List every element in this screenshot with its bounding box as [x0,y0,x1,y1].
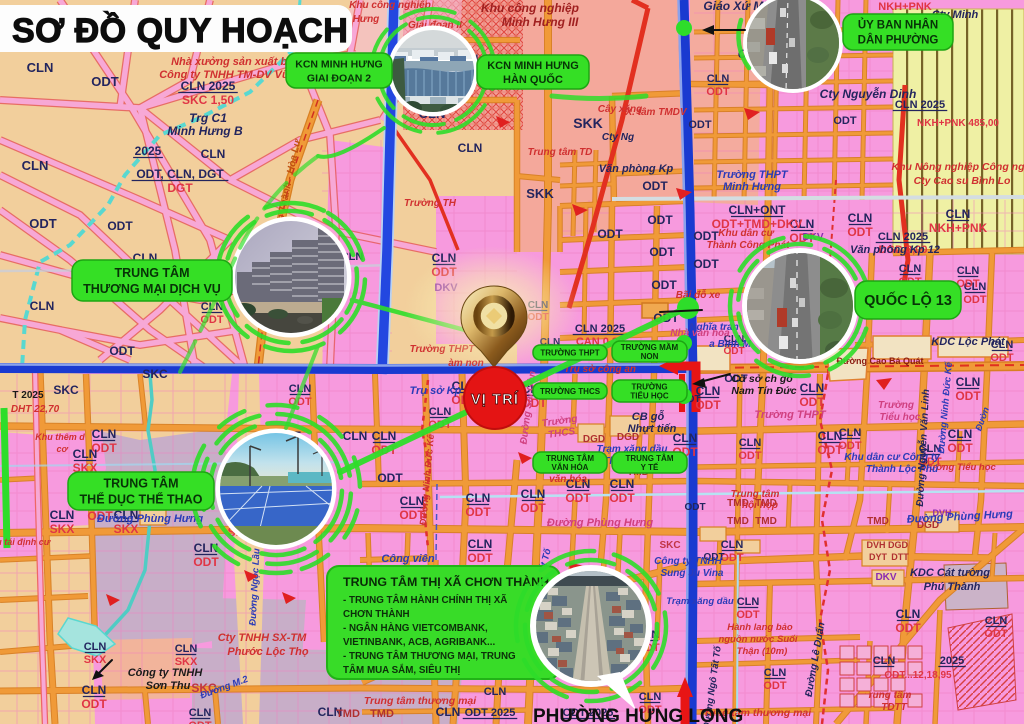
svg-text:hội họp: hội họp [742,500,778,511]
svg-text:ODT: ODT [799,395,825,409]
svg-text:Hành lang bảo: Hành lang bảo [727,622,793,633]
svg-text:Tiểu học: Tiểu học [880,411,921,423]
svg-text:CHƠN THÀNH: CHƠN THÀNH [343,608,410,620]
svg-text:Minh Hưng III: Minh Hưng III [502,15,579,29]
svg-text:CLN: CLN [22,158,49,173]
svg-text:CLN: CLN [848,211,873,225]
svg-text:THỂ DỤC THỂ THAO: THỂ DỤC THỂ THAO [80,492,203,507]
svg-text:ODT: ODT [609,491,635,505]
svg-text:CLN: CLN [764,667,787,679]
svg-text:TRƯỜNG THCS: TRƯỜNG THCS [540,387,601,396]
svg-text:CLN: CLN [82,683,107,697]
svg-text:ODT: ODT [738,450,762,462]
svg-text:Minh Hưng B: Minh Hưng B [167,124,243,138]
svg-text:CLN: CLN [201,147,226,161]
svg-text:TRUNG TÂM: TRUNG TÂM [546,454,594,463]
svg-text:CLN: CLN [468,537,493,551]
svg-text:ODT: ODT [706,86,730,98]
svg-text:CLN: CLN [800,381,825,395]
svg-text:CLN: CLN [73,447,98,461]
svg-text:KCN MINH HƯNG: KCN MINH HƯNG [295,58,382,70]
svg-text:Đường Phùng Hưng: Đường Phùng Hưng [97,513,203,525]
svg-text:CLN: CLN [948,427,973,441]
svg-text:TDTT: TDTT [881,702,907,713]
svg-text:CLN: CLN [84,641,107,653]
svg-text:ODT: ODT [688,119,712,131]
svg-text:KDC Lộc Phát: KDC Lộc Phát [931,336,1006,348]
svg-text:CLN: CLN [610,477,635,491]
svg-text:Khu thêm d: Khu thêm d [35,432,85,442]
svg-text:Sung Ju Vina: Sung Ju Vina [661,568,724,579]
svg-text:CLN 2025: CLN 2025 [878,231,928,243]
svg-text:ODT 2025: ODT 2025 [465,707,516,719]
svg-text:T 2025: T 2025 [12,390,44,401]
svg-text:CLN: CLN [484,686,507,698]
svg-text:cơ: cơ [56,444,68,454]
svg-text:ODT: ODT [847,225,873,239]
svg-text:TRUNG TÂM: TRUNG TÂM [104,476,179,491]
svg-text:ODT: ODT [649,245,675,259]
svg-text:CLN: CLN [343,429,368,443]
svg-text:TRUNG TÂM: TRUNG TÂM [115,265,190,280]
svg-text:ODT: ODT [91,74,119,89]
svg-text:TRUNG TÂM: TRUNG TÂM [626,454,674,463]
svg-text:khu tái định cư: khu tái định cư [0,537,52,547]
svg-text:SKK: SKK [573,115,603,131]
svg-text:CLN 2025: CLN 2025 [181,79,236,93]
svg-text:Trụ sở Kp 7: Trụ sở Kp 7 [410,385,472,397]
svg-text:nguồn nước Suối: nguồn nước Suối [718,634,797,645]
svg-text:DYT: DYT [869,552,888,562]
svg-text:VỊ TRÍ: VỊ TRÍ [471,391,519,408]
svg-text:ODT: ODT [955,389,981,403]
svg-text:CLN: CLN [737,596,760,608]
svg-text:Trường TH: Trường TH [404,198,457,209]
svg-text:THƯƠNG MẠI DỊCH VỤ: THƯƠNG MẠI DỊCH VỤ [83,282,221,296]
svg-text:ODT: ODT [188,720,212,724]
svg-text:Khu dân cư: Khu dân cư [718,228,774,239]
svg-text:CLN: CLN [896,607,921,621]
svg-text:CLN: CLN [521,487,546,501]
svg-text:GIAI ĐOẠN 2: GIAI ĐOẠN 2 [307,72,371,84]
svg-text:TRƯỜNG THPT: TRƯỜNG THPT [540,348,599,357]
svg-text:Y TẾ: Y TẾ [641,462,659,472]
svg-text:CLN: CLN [707,73,730,85]
svg-text:TRƯỜNG: TRƯỜNG [631,382,667,391]
svg-text:văn hóa: văn hóa [549,474,587,485]
svg-text:CLN: CLN [429,406,452,418]
svg-text:CLN: CLN [739,437,762,449]
svg-text:CB gỗ: CB gỗ [632,410,665,423]
svg-text:CLN: CLN [946,207,971,221]
svg-text:Minh Hưng: Minh Hưng [723,181,781,193]
svg-text:Thận (10m): Thận (10m) [737,646,788,657]
svg-text:TMD: TMD [867,516,889,527]
svg-text:TRƯỜNG MẦM: TRƯỜNG MẦM [621,342,679,352]
svg-text:ODT: ODT [109,344,135,358]
svg-text:Công viên: Công viên [381,553,434,565]
svg-text:SKC: SKC [659,540,680,551]
svg-text:Đường Phùng Hưng: Đường Phùng Hưng [547,517,653,529]
svg-text:CLN: CLN [27,60,54,75]
svg-text:Trung tâm: Trung tâm [731,489,780,500]
svg-text:Trường THPT: Trường THPT [754,409,827,421]
svg-text:NKH+PNK: NKH+PNK [878,1,932,13]
svg-text:ODT: ODT [81,697,107,711]
svg-text:CLN 2025: CLN 2025 [575,323,625,335]
svg-text:Cty TNHH SX-TM: Cty TNHH SX-TM [218,632,307,644]
svg-text:TRUNG TÂM THỊ XÃ CHƠN THÀNH: TRUNG TÂM THỊ XÃ CHƠN THÀNH [343,574,549,589]
svg-text:a Bình M: a Bình M [709,339,751,350]
svg-text:Văn phòng Kp 12: Văn phòng Kp 12 [850,244,940,256]
svg-text:ODT: ODT [565,491,591,505]
svg-text:ODT: ODT [990,352,1014,364]
svg-text:TMD: TMD [370,708,394,720]
svg-text:- NGÂN HÀNG VIETCOMBANK,: - NGÂN HÀNG VIETCOMBANK, [343,622,488,634]
svg-text:ODT: ODT [895,621,921,635]
svg-text:ODT...12,18,95: ODT...12,18,95 [884,670,952,681]
svg-text:CLN: CLN [873,655,896,667]
svg-text:ODT: ODT [984,628,1008,640]
svg-text:KDC Cát tường: KDC Cát tường [910,567,990,579]
svg-text:CLN: CLN [30,299,55,313]
svg-text:Trường THPT: Trường THPT [716,169,789,181]
svg-text:SKC: SKC [53,383,79,397]
svg-text:SKX: SKX [50,522,75,536]
svg-text:ODT: ODT [838,440,862,452]
svg-text:ODT: ODT [520,501,546,515]
svg-text:TIỂU HỌC: TIỂU HỌC [630,391,668,400]
svg-text:TMD: TMD [755,516,777,527]
svg-text:Cty Ng: Cty Ng [602,132,634,143]
svg-text:ODT: ODT [107,219,133,233]
svg-text:DGT: DGT [167,181,193,195]
svg-text:ODT: ODT [647,213,673,227]
svg-text:Sơn Thu: Sơn Thu [146,680,191,692]
svg-text:Phú Thành: Phú Thành [924,581,981,593]
svg-text:ODT: ODT [947,441,973,455]
svg-text:Cty Nguyễn Dinh: Cty Nguyễn Dinh [820,86,917,101]
svg-text:ỦY BAN NHÂN: ỦY BAN NHÂN [858,19,938,32]
svg-text:Hưng: Hưng [353,14,380,25]
svg-text:SKK: SKK [526,186,554,201]
svg-text:ODT: ODT [763,680,787,692]
svg-text:CLN: CLN [50,508,75,522]
svg-text:VIETINBANK, ACB, AGRIBANK...: VIETINBANK, ACB, AGRIBANK... [343,637,495,648]
svg-text:Khu công nghiệp: Khu công nghiệp [481,1,579,15]
svg-text:CLN: CLN [175,643,198,655]
svg-text:Trụ sở công an: Trụ sở công an [564,364,636,375]
svg-text:ODT, CLN, DGT: ODT, CLN, DGT [136,167,224,181]
svg-text:CLN: CLN [436,705,461,719]
svg-text:ODT: ODT [833,115,857,127]
svg-text:Công ty TNHH: Công ty TNHH [128,667,204,679]
svg-text:Trung tâm thương mại: Trung tâm thương mại [364,695,477,707]
svg-text:DGD: DGD [888,540,909,550]
svg-text:X. tâm TMDV: X. tâm TMDV [624,107,687,118]
svg-text:2025: 2025 [940,655,964,667]
svg-text:rung tâm: rung tâm [869,690,912,701]
svg-text:DKV: DKV [875,572,896,583]
svg-text:SKC 1,50: SKC 1,50 [182,93,234,107]
svg-text:ODT: ODT [693,257,719,271]
svg-text:NKH+PNK: NKH+PNK [929,221,988,235]
svg-text:CLN: CLN [466,491,491,505]
svg-text:ODT: ODT [467,551,493,565]
svg-text:ODT: ODT [377,471,403,485]
svg-text:CLN+ONT: CLN+ONT [729,203,787,217]
svg-text:ODT: ODT [963,294,987,306]
svg-text:TMD: TMD [336,708,360,720]
svg-text:Trạm xăng dầu: Trạm xăng dầu [666,596,734,607]
svg-text:Công ty TNHH: Công ty TNHH [654,556,723,567]
svg-text:DTT: DTT [891,552,909,562]
svg-text:CLN: CLN [92,427,117,441]
svg-text:SƠ ĐỒ QUY HOẠCH: SƠ ĐỒ QUY HOẠCH [12,12,348,50]
svg-text:KCN MINH HƯNG: KCN MINH HƯNG [487,60,579,72]
svg-text:CLN: CLN [957,265,980,277]
svg-text:PHƯỜNG HƯNG LONG: PHƯỜNG HƯNG LONG [533,705,743,724]
svg-text:HÀN QUỐC: HÀN QUỐC [503,72,563,86]
svg-text:NON: NON [641,352,659,361]
svg-text:Cty Cao su Bình Lo: Cty Cao su Bình Lo [914,175,1011,187]
svg-text:- TRUNG TÂM HÀNH CHÍNH THỊ XÃ: - TRUNG TÂM HÀNH CHÍNH THỊ XÃ [343,594,507,606]
svg-text:QUỐC LỘ 13: QUỐC LỘ 13 [864,291,952,309]
svg-text:ODT: ODT [642,179,668,193]
svg-text:ODT: ODT [193,555,219,569]
svg-text:Văn phòng Kp: Văn phòng Kp [599,163,674,175]
svg-text:DVH: DVH [866,540,885,550]
svg-text:Khu Nông nghiệp Công ng: Khu Nông nghiệp Công ng [892,161,1024,173]
svg-text:ODT: ODT [684,502,705,513]
svg-text:Nam Tín Đức: Nam Tín Đức [731,385,796,397]
svg-text:CLN: CLN [985,615,1008,627]
svg-text:Nhựt tiến: Nhựt tiến [628,423,677,435]
svg-text:Trường: Trường [878,400,914,411]
svg-text:DÂN PHƯỜNG: DÂN PHƯỜNG [858,34,939,47]
svg-text:CLN: CLN [458,141,483,155]
svg-text:CLN: CLN [721,539,744,551]
svg-text:CLN: CLN [372,429,397,443]
svg-text:Trg C1: Trg C1 [189,111,227,125]
svg-text:2025: 2025 [135,144,162,158]
svg-text:ODT: ODT [651,278,677,292]
svg-text:CLN: CLN [639,691,662,703]
svg-text:TMD: TMD [727,516,749,527]
svg-text:ODT: ODT [29,216,57,231]
svg-text:SKC: SKC [142,367,168,381]
svg-text:DHT 22,70: DHT 22,70 [11,404,60,415]
svg-text:TÂM MUA SẮM, SIÊU THỊ: TÂM MUA SẮM, SIÊU THỊ [343,664,460,676]
svg-text:Phước Lộc Thọ: Phước Lộc Thọ [227,646,309,658]
svg-text:NKH+PNK 485,00: NKH+PNK 485,00 [917,118,999,129]
svg-text:CLN: CLN [899,263,922,275]
svg-text:- TRUNG TÂM THƯƠNG MẠI, TRUNG: - TRUNG TÂM THƯƠNG MẠI, TRUNG [343,650,516,662]
svg-text:SKX: SKX [84,654,107,666]
svg-text:ODT: ODT [597,227,623,241]
svg-text:CLN: CLN [839,427,862,439]
svg-text:CLN: CLN [189,707,212,719]
svg-text:ODT: ODT [465,505,491,519]
svg-text:ODT: ODT [736,609,760,621]
svg-text:VĂN HÓA: VĂN HÓA [552,463,589,472]
svg-text:CLN: CLN [956,375,981,389]
svg-text:Trung tâm TD: Trung tâm TD [528,147,593,158]
